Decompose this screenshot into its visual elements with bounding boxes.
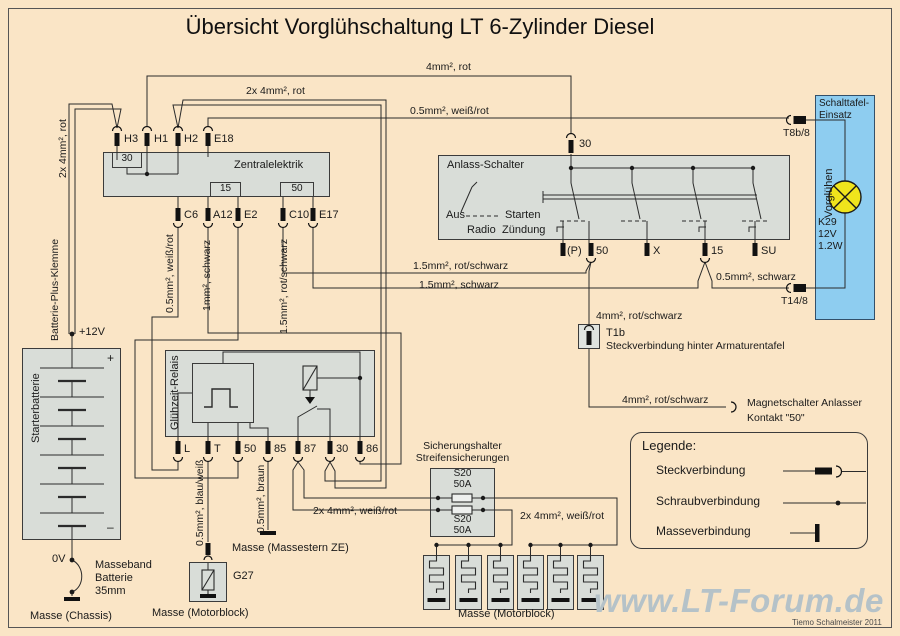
battery-wire-label: 2x 4mm², rot bbox=[57, 119, 69, 178]
wire-c6-label: 0.5mm², weiß/rot bbox=[164, 234, 176, 313]
relay-terminal-l: L bbox=[184, 443, 190, 456]
terminal-50: 50 bbox=[596, 245, 608, 258]
relay-terminal-t: T bbox=[214, 443, 221, 456]
fuse2-label: S20 50A bbox=[430, 515, 495, 536]
glow-plug-4 bbox=[517, 555, 544, 610]
terminal-x: X bbox=[653, 245, 660, 258]
masseband-label: Masseband Batterie 35mm bbox=[95, 559, 152, 598]
ignition-30-label: 30 bbox=[579, 138, 591, 151]
credit-text: Tiemo Schalmeister 2011 bbox=[792, 618, 882, 627]
relay-terminal-30: 30 bbox=[336, 443, 348, 456]
wire-2x4mm-rot-label: 2x 4mm², rot bbox=[246, 85, 305, 97]
terminal-h2: H2 bbox=[184, 133, 198, 146]
fuse-wire-right-label: 2x 4mm², weiß/rot bbox=[520, 510, 604, 522]
terminal-e17: E17 bbox=[319, 209, 339, 222]
ignition-starten-label: Starten bbox=[505, 209, 540, 222]
wire-15-rotschwarz-label: 1.5mm², rot/schwarz bbox=[413, 260, 508, 272]
lamp-k29-label: K29 12V 1.2W bbox=[818, 216, 843, 252]
braun-wire-label: 0.5mm², braun bbox=[255, 465, 267, 533]
plus-12v-label: +12V bbox=[79, 326, 105, 339]
relay-terminal-85: 85 bbox=[274, 443, 286, 456]
wire-05-weissrot-label: 0.5mm², weiß/rot bbox=[410, 105, 489, 117]
terminal-h1: H1 bbox=[154, 133, 168, 146]
plugs-ground-label: Masse (Motorblock) bbox=[458, 608, 555, 621]
t1b-label: T1b bbox=[606, 327, 625, 340]
g27-wire-label: 0.5mm², blau/weiß bbox=[194, 460, 206, 546]
terminal-a12: A12 bbox=[213, 209, 233, 222]
starter-battery-label: Starterbatterie bbox=[30, 373, 42, 443]
t8b8-label: T8b/8 bbox=[783, 127, 810, 139]
t14-8-label: T14/8 bbox=[781, 295, 808, 307]
legend-schraubverbindung: Schraubverbindung bbox=[656, 494, 760, 508]
battery-plus-sign: + bbox=[107, 351, 114, 365]
legend-steckverbindung: Steckverbindung bbox=[656, 463, 745, 477]
panel-title: Schalttafel- Einsatz bbox=[819, 98, 869, 122]
ignition-aus-label: Aus bbox=[446, 209, 465, 222]
ze-15-label: 15 bbox=[210, 183, 241, 195]
vorgluehen-label: Vorglühen bbox=[823, 168, 835, 218]
massestern-label: Masse (Massestern ZE) bbox=[232, 542, 349, 555]
ignition-switch-label: Anlass-Schalter bbox=[447, 159, 524, 172]
magnet-wire-label: 4mm², rot/schwarz bbox=[622, 394, 708, 406]
schematic-page: Übersicht Vorglühschaltung LT 6-Zylinder… bbox=[0, 0, 900, 636]
ze-50-label: 50 bbox=[280, 183, 314, 195]
masse-chassis-label: Masse (Chassis) bbox=[30, 610, 112, 623]
terminal-c10: C10 bbox=[289, 209, 309, 222]
watermark: www.LT-Forum.de bbox=[594, 582, 884, 620]
t1b-desc-label: Steckverbindung hinter Armaturentafel bbox=[606, 340, 785, 352]
terminal-e18: E18 bbox=[214, 133, 234, 146]
battery-plus-klemme-label: Batterie-Plus-Klemme bbox=[49, 239, 61, 341]
glow-relay-label: Glühzeit-Relais bbox=[169, 355, 181, 430]
wire-05-schwarz-label: 0.5mm², schwarz bbox=[716, 271, 796, 283]
relay-timer-box bbox=[192, 363, 254, 423]
terminal-p: (P) bbox=[567, 245, 582, 258]
fuse-holder-title: Sicherungshalter Streifensicherungen bbox=[405, 440, 520, 465]
fuse1-label: S20 50A bbox=[430, 469, 495, 490]
wire-a12-label: 1mm², schwarz bbox=[201, 240, 213, 311]
ignition-radio-label: Radio bbox=[467, 224, 496, 237]
glow-plug-5 bbox=[547, 555, 574, 610]
zero-volt-label: 0V bbox=[52, 553, 65, 566]
terminal-c6: C6 bbox=[184, 209, 198, 222]
legend-title: Legende: bbox=[642, 438, 696, 453]
g27-ground-label: Masse (Motorblock) bbox=[152, 607, 249, 620]
fuse-wire-left-label: 2x 4mm², weiß/rot bbox=[313, 505, 397, 517]
zentralelektrik-label: Zentralelektrik bbox=[234, 159, 303, 172]
g27-sensor-box bbox=[189, 562, 227, 602]
g27-label: G27 bbox=[233, 570, 254, 583]
wire-4mm-rot-label: 4mm², rot bbox=[426, 61, 471, 73]
relay-terminal-50: 50 bbox=[244, 443, 256, 456]
t1b-wire-label: 4mm², rot/schwarz bbox=[596, 310, 682, 322]
terminal-e2: E2 bbox=[244, 209, 257, 222]
ze-30-label: 30 bbox=[112, 153, 142, 165]
magnetschalter-label: Magnetschalter Anlasser Kontakt "50" bbox=[747, 396, 862, 425]
terminal-h3: H3 bbox=[124, 133, 138, 146]
glow-plug-2 bbox=[455, 555, 482, 610]
relay-terminal-86: 86 bbox=[366, 443, 378, 456]
relay-terminal-87: 87 bbox=[304, 443, 316, 456]
page-title: Übersicht Vorglühschaltung LT 6-Zylinder… bbox=[140, 14, 700, 40]
wire-c10-label: 1.5mm², rot/schwarz bbox=[278, 239, 290, 334]
legend-masseverbindung: Masseverbindung bbox=[656, 524, 751, 538]
glow-plug-3 bbox=[487, 555, 514, 610]
wire-15-schwarz-label: 1.5mm², schwarz bbox=[419, 279, 499, 291]
t1b-connector-box bbox=[578, 324, 600, 349]
battery-minus-sign: – bbox=[107, 520, 114, 534]
glow-plug-1 bbox=[423, 555, 450, 610]
ignition-zuendung-label: Zündung bbox=[502, 224, 545, 237]
terminal-su: SU bbox=[761, 245, 776, 258]
terminal-15: 15 bbox=[711, 245, 723, 258]
